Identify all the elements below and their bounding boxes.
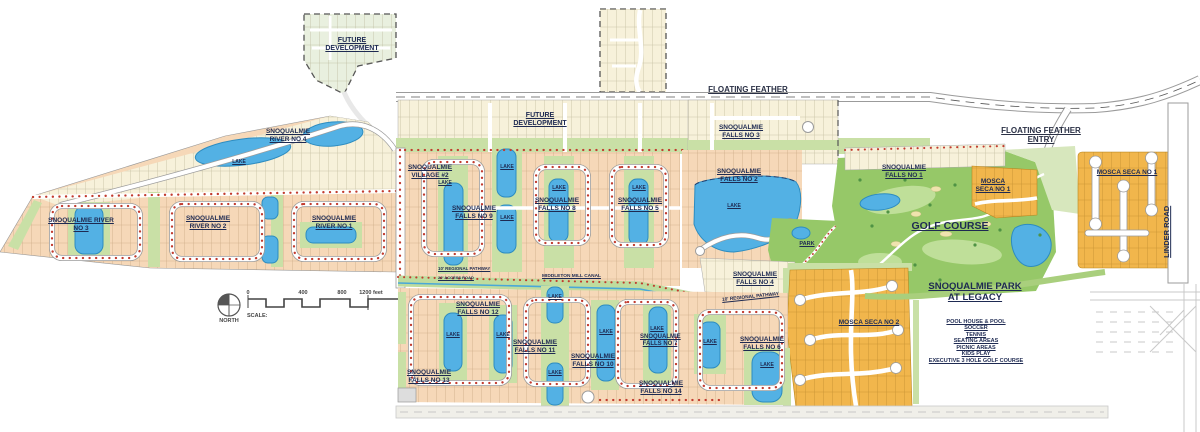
label-future-development-nw: FUTURE DEVELOPMENT: [318, 37, 386, 54]
scale-tick: 1200 feet: [352, 290, 390, 296]
label-floating-feather-entry: FLOATING FEATHER ENTRY: [995, 126, 1087, 145]
label-falls-no-3: SNOQUALMIE FALLS NO 3: [712, 124, 770, 139]
label-mosca-seca-1-west: MOSCA SECA NO 1: [975, 178, 1011, 193]
label-access-road: 20' ACCESS ROAD: [438, 276, 474, 281]
label-river-no-4: SNOQUALMIE RIVER NO 4: [256, 128, 320, 143]
label-golf-course: GOLF COURSE: [895, 220, 1005, 232]
label-lake: LAKE: [496, 165, 518, 171]
legacy-park-amenities: POOL HOUSE & POOL SOCCER TENNIS SEATING …: [915, 319, 1037, 364]
scale-tick: 800: [331, 290, 353, 296]
scale-bar: [248, 295, 398, 310]
label-falls-no-5: SNOQUALMIE FALLS NO 5: [610, 197, 670, 212]
label-lake: LAKE: [646, 327, 668, 333]
label-village-2: SNOQUALMIE VILLAGE #2: [402, 164, 458, 179]
site-plan-map: FUTURE DEVELOPMENT FUTURE DEVELOPMENT FL…: [0, 0, 1200, 432]
label-lake: LAKE: [723, 204, 745, 210]
scale-tick: 0: [243, 290, 253, 296]
label-falls-no-2: SNOQUALMIE FALLS NO 2: [708, 168, 770, 183]
south-road: [396, 406, 1108, 418]
label-lake: LAKE: [595, 330, 617, 336]
label-falls-no-8: SNOQUALMIE FALLS NO 8: [528, 197, 586, 212]
legacy-park-title: SNOQUALMIE PARK AT LEGACY: [925, 281, 1025, 303]
label-falls-no-14: SNOQUALMIE FALLS NO 14: [630, 380, 692, 395]
north-label: NORTH: [213, 318, 245, 324]
label-floating-feather: FLOATING FEATHER: [702, 85, 794, 94]
label-falls-no-9: SNOQUALMIE FALLS NO 9: [445, 205, 503, 220]
label-river-no-3: SNOQUALMIE RIVER NO 3: [48, 217, 114, 232]
label-regional-pathway: 10' REGIONAL PATHWAY: [438, 266, 490, 271]
label-lake: LAKE: [496, 216, 518, 222]
label-falls-no-12: SNOQUALMIE FALLS NO 12: [448, 301, 508, 316]
scale-label: SCALE:: [247, 313, 279, 319]
north-arrow: [218, 294, 240, 316]
label-lake: LAKE: [628, 186, 650, 192]
label-river-no-2: SNOQUALMIE RIVER NO 2: [176, 215, 240, 230]
label-future-development-mid: FUTURE DEVELOPMENT: [503, 112, 577, 129]
label-mosca-seca-1-east: MOSCA SECA NO 1: [1095, 169, 1159, 177]
label-lake: LAKE: [756, 363, 778, 369]
label-linder-road: LINDER ROAD: [1163, 197, 1172, 267]
snoqualmie-river-area: [0, 116, 396, 272]
amenity-item: EXECUTIVE 3 HOLE GOLF COURSE: [915, 358, 1037, 364]
future-development-n-area: [600, 9, 666, 103]
label-lake: LAKE: [699, 340, 721, 346]
label-park: PARK: [795, 241, 819, 247]
label-middleton-mill-canal: MIDDLETON MILL CANAL: [542, 274, 601, 280]
label-falls-no-6: SNOQUALMIE FALLS NO 6: [733, 336, 791, 351]
label-lake: LAKE: [442, 333, 464, 339]
mosca-seca-2-area: [783, 263, 912, 408]
label-lake: LAKE: [544, 295, 566, 301]
label-falls-no-7: SNOQUALMIE FALLS NO 7: [640, 334, 680, 348]
label-falls-no-11: SNOQUALMIE FALLS NO 11: [505, 339, 565, 354]
label-lake: LAKE: [434, 181, 456, 187]
label-lake: LAKE: [548, 186, 570, 192]
label-lake: LAKE: [492, 333, 514, 339]
label-falls-no-10: SNOQUALMIE FALLS NO 10: [563, 353, 623, 368]
scale-tick: 400: [292, 290, 314, 296]
label-falls-no-4: SNOQUALMIE FALLS NO 4: [722, 271, 788, 286]
label-lake: LAKE: [228, 160, 250, 166]
label-falls-no-1: SNOQUALMIE FALLS NO 1: [873, 164, 935, 179]
label-mosca-seca-2: MOSCA SECA NO 2: [838, 319, 900, 327]
label-river-no-1: SNOQUALMIE RIVER NO 1: [302, 215, 366, 230]
label-falls-no-13: SNOQUALMIE FALLS NO 13: [398, 369, 460, 384]
label-lake: LAKE: [544, 371, 566, 377]
